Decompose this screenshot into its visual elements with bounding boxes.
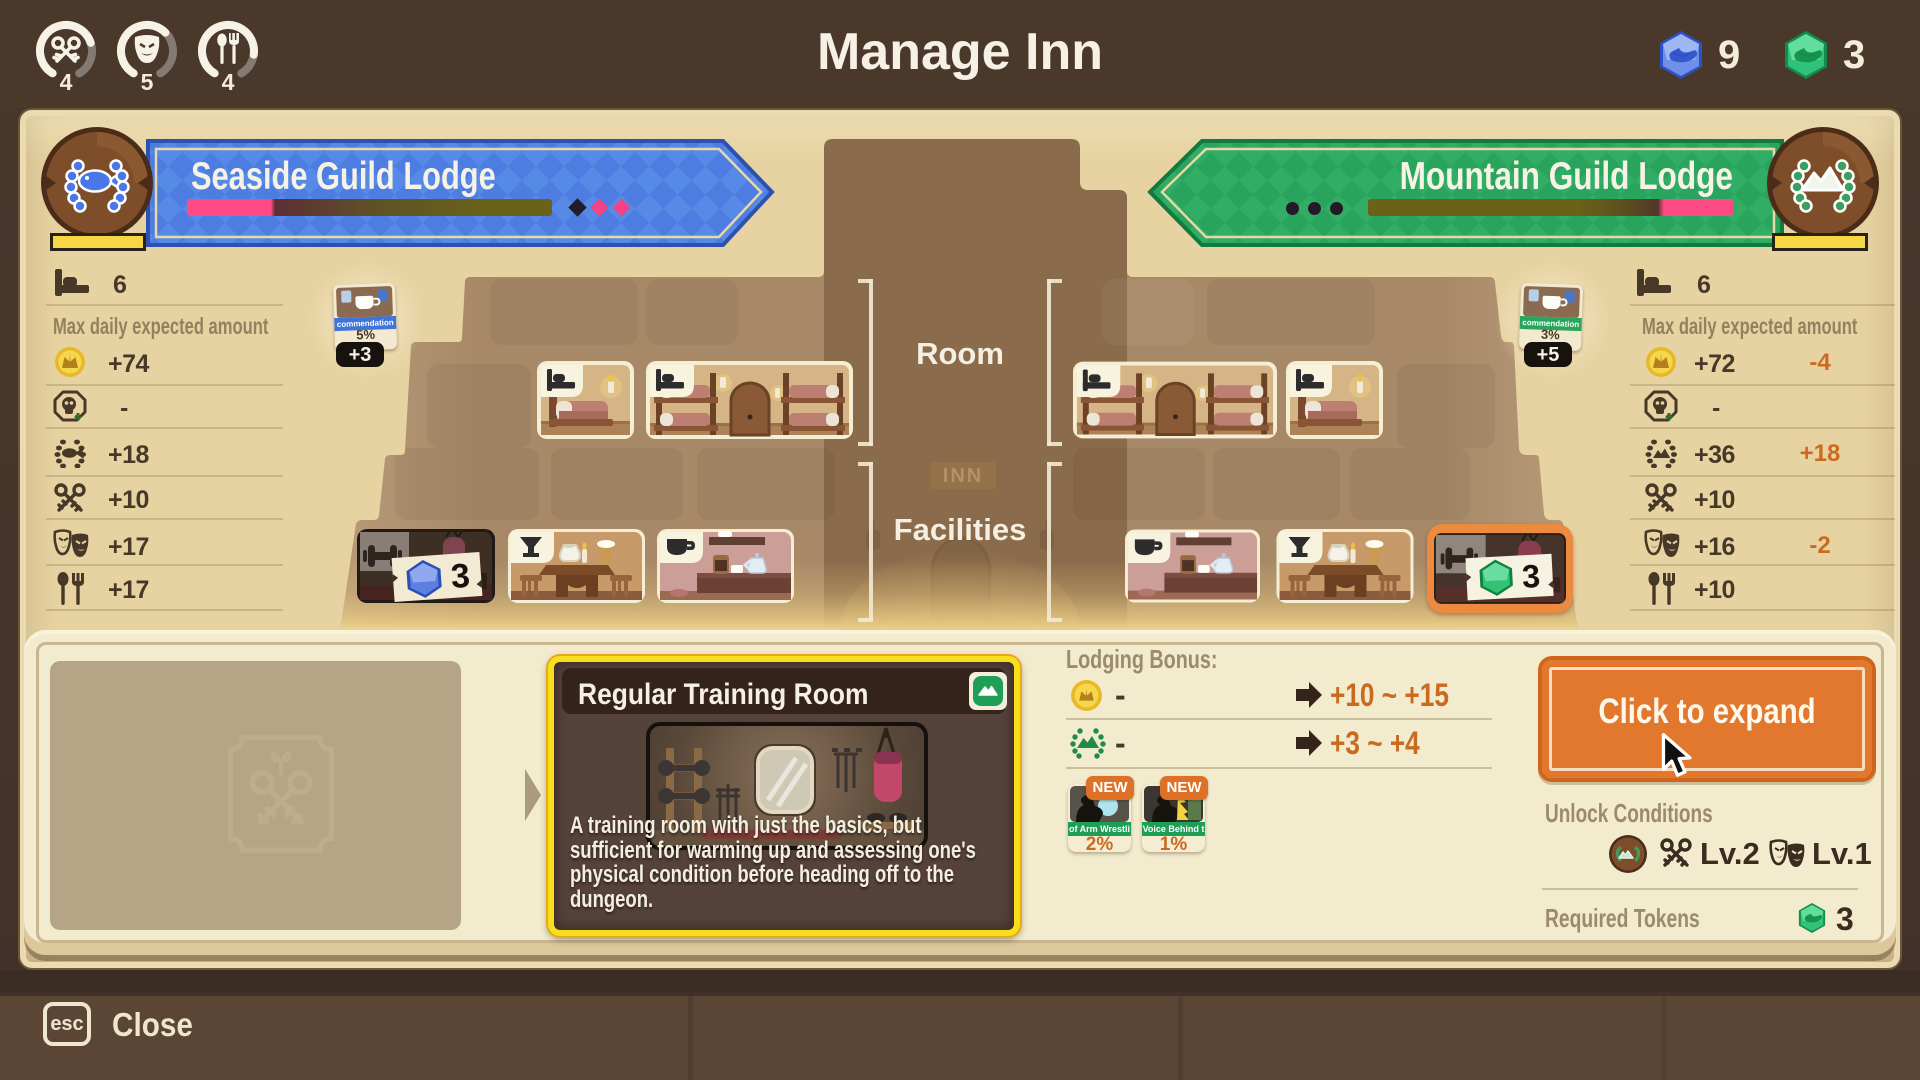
svg-text:3: 3 (450, 557, 472, 596)
svg-text:3: 3 (1521, 558, 1541, 595)
svg-text:4: 4 (60, 69, 73, 94)
svg-text:4: 4 (222, 69, 235, 94)
svg-text:INN: INN (943, 465, 983, 487)
svg-text:5: 5 (141, 69, 154, 94)
